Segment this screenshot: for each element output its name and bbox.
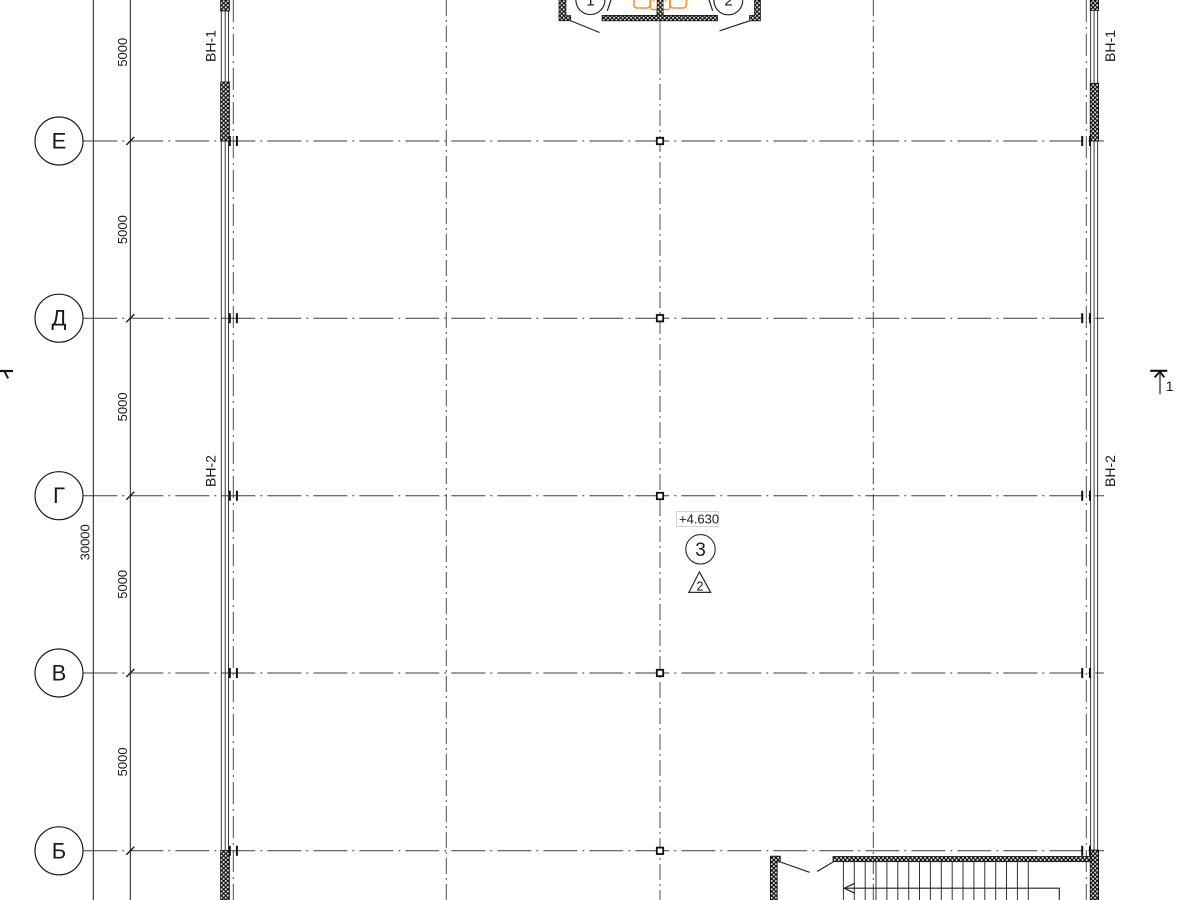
- svg-text:2: 2: [697, 580, 704, 594]
- svg-text:5000: 5000: [115, 747, 130, 776]
- svg-text:ВН-2: ВН-2: [1102, 455, 1118, 487]
- svg-text:5000: 5000: [115, 215, 130, 244]
- svg-text:5000: 5000: [115, 38, 130, 67]
- svg-text:Е: Е: [52, 129, 67, 154]
- svg-text:2: 2: [724, 0, 732, 10]
- svg-text:30000: 30000: [78, 524, 93, 560]
- svg-text:Б: Б: [52, 838, 66, 863]
- svg-text:В: В: [52, 661, 67, 686]
- svg-text:1: 1: [586, 0, 594, 9]
- svg-text:5000: 5000: [115, 392, 130, 421]
- svg-text:5000: 5000: [115, 570, 130, 599]
- svg-text:3: 3: [695, 540, 706, 561]
- svg-text:Д: Д: [52, 306, 67, 331]
- svg-text:+4.630: +4.630: [679, 512, 719, 527]
- svg-text:1: 1: [1166, 378, 1174, 394]
- svg-text:ВН-2: ВН-2: [203, 455, 219, 487]
- svg-text:Г: Г: [53, 483, 65, 508]
- svg-text:ВН-1: ВН-1: [1102, 30, 1118, 62]
- svg-text:ВН-1: ВН-1: [203, 30, 219, 62]
